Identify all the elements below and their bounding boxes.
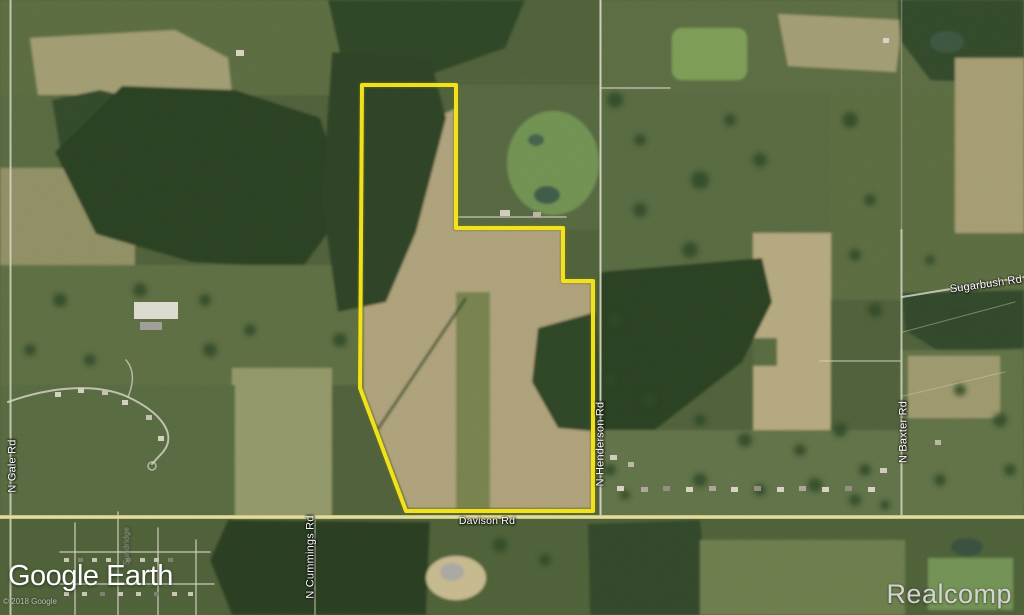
road-label-gale: N Gale Rd	[8, 439, 19, 492]
road-label-davison: Davison Rd	[459, 516, 515, 527]
road-label-cummings: N Cummings Rd	[306, 515, 317, 598]
realcomp-watermark: Realcomp	[886, 579, 1012, 610]
road-label-baxter: N Baxter Rd	[899, 401, 910, 463]
copyright-text: © 2018 Google	[3, 597, 57, 606]
google-earth-logo: Google Earth	[8, 560, 173, 593]
road-label-henderson: N Henderson Rd	[596, 402, 607, 487]
aerial-map-view: Davison Rd N Henderson Rd N Baxter Rd N …	[0, 0, 1024, 615]
